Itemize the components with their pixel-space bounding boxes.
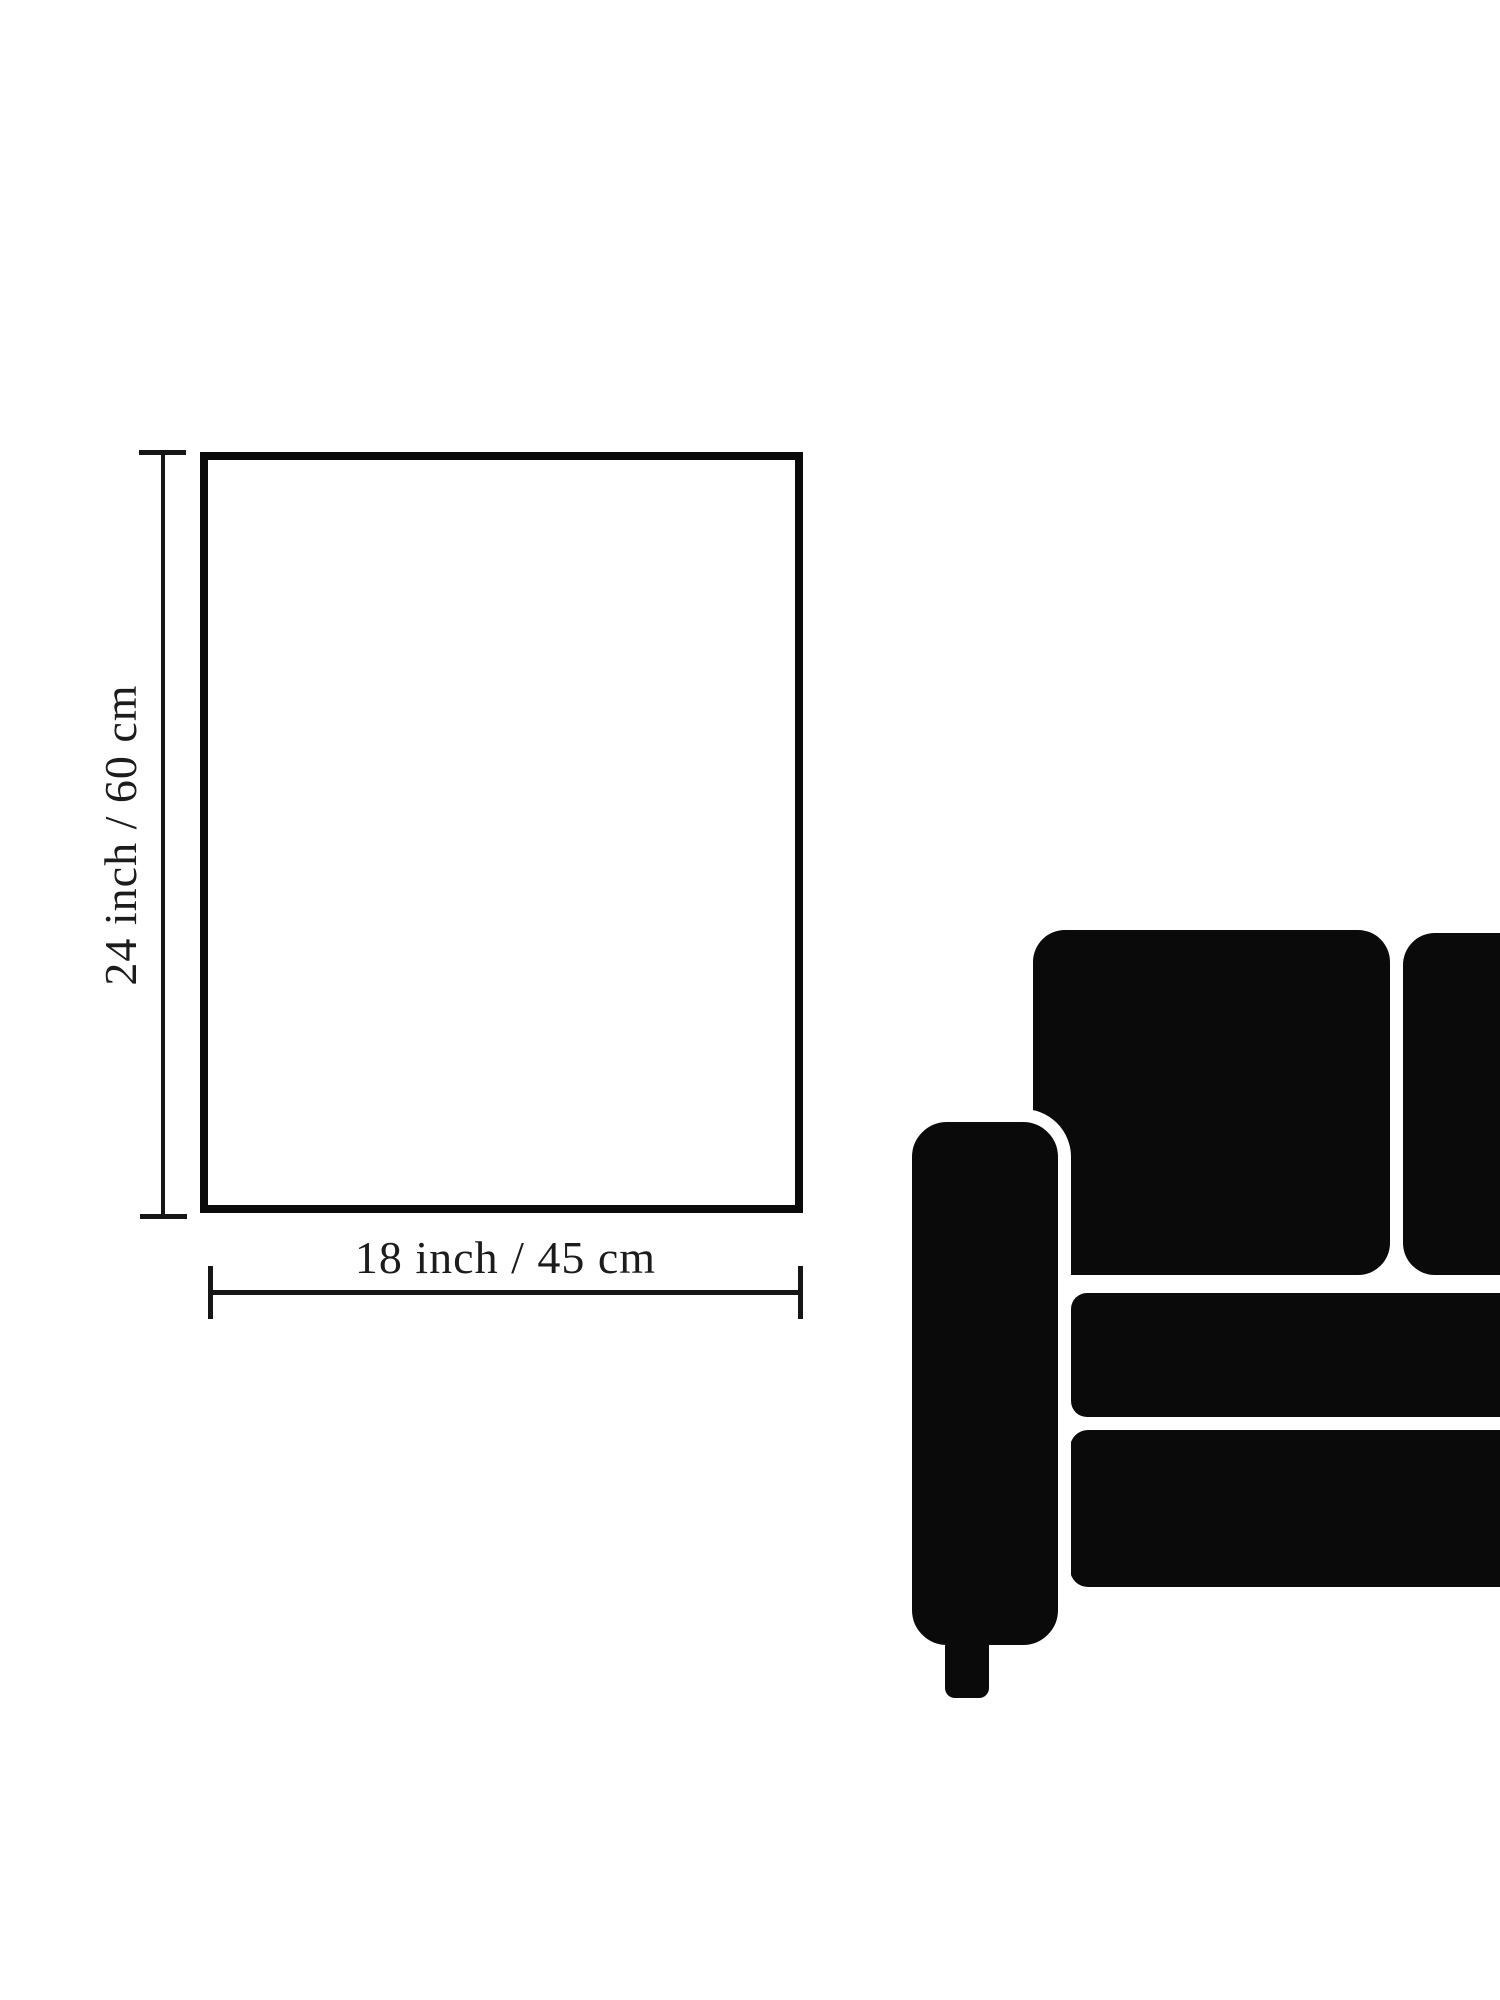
vertical-dimension-tick-top [139, 450, 186, 455]
vertical-dimension-label: 24 inch / 60 cm [93, 535, 149, 1135]
sofa-backrest-cushion-right [1403, 933, 1500, 1275]
sofa-armrest [899, 1109, 1071, 1658]
vertical-dimension-tick-bottom [140, 1214, 187, 1219]
product-dimension-diagram: 24 inch / 60 cm 18 inch / 45 cm [0, 0, 1500, 2000]
poster-frame [200, 452, 803, 1213]
horizontal-dimension-label: 18 inch / 45 cm [208, 1230, 803, 1286]
sofa-backrest-cushion-left [1033, 930, 1390, 1275]
sofa-seat-back-bar [1071, 1293, 1500, 1417]
vertical-dimension-line [161, 452, 165, 1218]
sofa-armrest-foot [945, 1638, 989, 1698]
horizontal-dimension-line [208, 1290, 803, 1295]
sofa-seat-base-bar [1070, 1430, 1500, 1587]
